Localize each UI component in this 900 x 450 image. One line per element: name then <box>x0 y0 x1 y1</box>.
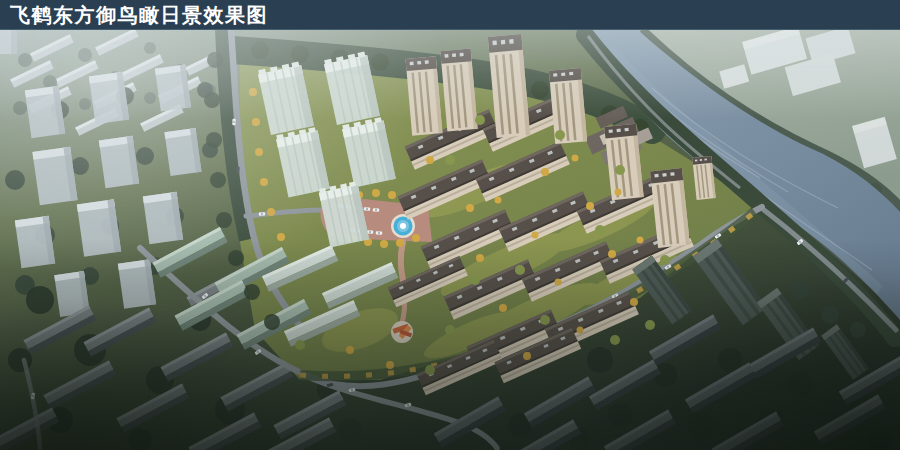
rendering-canvas: 飞鹤东方御鸟瞰日景效果图 <box>0 0 900 450</box>
title-text: 飞鹤东方御鸟瞰日景效果图 <box>10 5 268 25</box>
rendering-image <box>0 30 900 450</box>
title-bar: 飞鹤东方御鸟瞰日景效果图 <box>0 0 900 30</box>
